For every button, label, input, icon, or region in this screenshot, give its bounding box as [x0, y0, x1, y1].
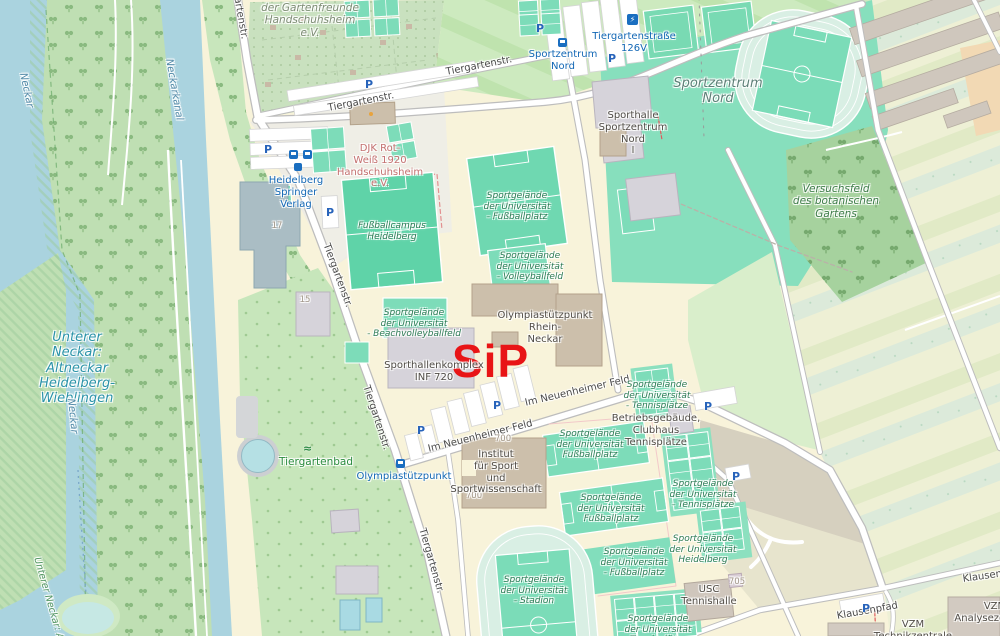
label-tiergartenstr-3: Tiergartenstr. — [226, 0, 249, 40]
label-reserve-boundary: Unterer Neckar: Altneckar Heidelberg-Wie… — [31, 556, 107, 636]
label-hn-700a: 700 — [495, 434, 511, 444]
label-sg-heidelberg: Sportgelände der Universität Heidelberg — [670, 534, 737, 566]
label-sg-fussballplatz-big: Sportgelände der Universität - Fußballpl… — [484, 191, 551, 223]
label-institut-sport: Institut für Sport und Sportwissenschaft — [450, 449, 541, 496]
label-tiergartenstr-5: Tiergartenstr. — [360, 384, 392, 452]
label-betriebsgebaeude: Betriebsgebäude, Clubhaus Tennisplätze — [612, 413, 701, 448]
parking-icon: P — [732, 470, 740, 483]
parking-icon: P — [704, 400, 712, 413]
label-sg-tennis-a: Sportgelände der Universität - Tennisplä… — [624, 380, 691, 412]
label-layer: der Gartenfreunde Handschuhsheim e.V.Tie… — [0, 0, 1000, 636]
bus-stop-icon — [289, 150, 298, 159]
label-sportzentrum-nord-stop: Sportzentrum Nord — [529, 49, 598, 73]
label-neckar-1: Neckar — [16, 72, 35, 109]
bus-stop-icon — [303, 150, 312, 159]
parking-icon: P — [417, 424, 425, 437]
power-station-icon: ⚡ — [627, 14, 638, 25]
label-neckarkanal: Neckarkanal — [162, 58, 184, 121]
label-sg-fussballplatz-f4: Sportgelände der Universität - Fußballpl… — [601, 547, 668, 579]
label-sg-tennis-d: Sportgelände der Universität Tennisplätz… — [625, 614, 692, 636]
parking-icon: P — [608, 52, 616, 65]
label-tiergartenbad: Tiergartenbad — [279, 456, 353, 468]
parking-icon: P — [264, 143, 272, 156]
label-hn-17: 17 — [272, 221, 283, 231]
label-hn-705: 705 — [729, 577, 745, 587]
label-vzm-technikzentrale: VZM Technikzentrale — [874, 619, 952, 636]
bus-stop-icon — [558, 38, 567, 47]
label-hn-15: 15 — [300, 295, 311, 305]
label-sporthalle-szn: Sporthalle Sportzentrum Nord I — [599, 110, 668, 157]
parking-icon: P — [536, 22, 544, 35]
label-im-neuenheimer-feld-1: Im Neuenheimer Feld — [524, 374, 631, 410]
label-tiergartenstrasse-126v: Tiergartenstraße 126V — [592, 31, 676, 55]
label-sg-stadion: Sportgelände der Universität - Stadion — [501, 575, 568, 607]
label-tiergartenstr-1: Tiergartenstr. — [327, 90, 395, 114]
parking-icon: P — [862, 602, 870, 615]
label-gartenfreunde: der Gartenfreunde Handschuhsheim e.V. — [261, 2, 359, 39]
label-djk: DJK Rot- Weiß 1920 Handschuhsheim e.V. — [337, 143, 423, 190]
parking-icon: P — [493, 399, 501, 412]
label-sg-fussballplatz-f3: Sportgelände der Universität Fußballplat… — [578, 493, 645, 525]
label-usc-tennishalle: USC Tennishalle — [681, 584, 736, 608]
label-tiergartenstr-2: Tiergartenstr. — [445, 54, 513, 78]
label-fussballcampus: Fußballcampus Heidelberg — [358, 221, 426, 242]
label-klausenpfad-2: Klausenpfad — [962, 565, 1000, 585]
label-tiergartenstr-4: Tiergartenstr. — [320, 242, 354, 309]
label-olympiastuetzpunkt-stop: Olympiastützpunkt — [357, 471, 452, 483]
bus-stop-icon — [396, 459, 405, 468]
map-canvas[interactable]: der Gartenfreunde Handschuhsheim e.V.Tie… — [0, 0, 1000, 636]
label-vzm-analysezentrum: VZM Analysezentrum — [954, 601, 1000, 625]
label-unterer-neckar: Unterer Neckar: Altneckar Heidelberg- Wi… — [39, 330, 115, 407]
label-versuchsfeld: Versuchsfeld des botanischen Gartens — [793, 183, 879, 220]
label-springer-stop: Heidelberg Springer Verlag — [269, 175, 324, 210]
label-tiergartenstr-6: Tiergartenstr. — [416, 527, 446, 595]
label-sporthallenkomplex: Sporthallenkomplex INF 720 — [384, 360, 484, 384]
swimmer-icon: ≈ — [303, 442, 312, 455]
parking-icon: P — [326, 206, 334, 219]
label-sg-beachvolleyball: Sportgelände der Universität - Beachvoll… — [367, 308, 461, 340]
label-sg-volleyballfeld: Sportgelände der Universität - Volleybal… — [497, 251, 564, 283]
bike-rental-icon — [294, 163, 302, 171]
label-sportzentrum-nord-place: Sportzentrum Nord — [673, 76, 762, 107]
parking-icon: P — [365, 78, 373, 91]
label-sg-tennis-b: Sportgelände der Universität - Tennisplä… — [670, 479, 737, 511]
